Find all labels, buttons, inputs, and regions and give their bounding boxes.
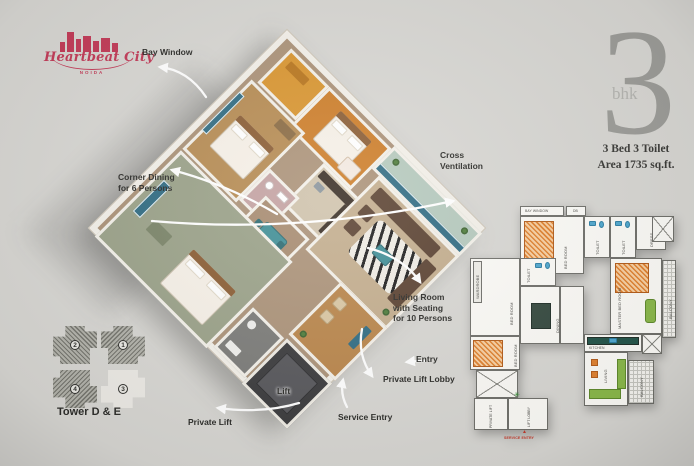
mini-dining: DINING [520, 286, 560, 344]
wc-fixture [245, 319, 258, 332]
logo-city: NOIDA [44, 70, 140, 75]
mini-bedroom-2: WARDROBE BED ROOM [470, 258, 520, 336]
tower-unit-2: 2 [53, 326, 97, 364]
label-lift: Lift [277, 386, 290, 397]
mini-service-shaft [642, 334, 662, 354]
mini-master-bedroom: MASTER BED ROOM [610, 258, 662, 334]
label-corner-dining: Corner Diningfor 6 Persons [118, 172, 175, 193]
basin-fixture [276, 191, 289, 204]
entry-arrow-icon: ▲ [522, 429, 527, 435]
plant-icon [391, 157, 401, 167]
mini-service-entry-label: SERVICE ENTRY [504, 436, 534, 440]
mini-toilet-2: TOILET [610, 216, 636, 258]
armchair [357, 204, 376, 223]
basin-fixture [225, 340, 242, 357]
arrow-service-entry [342, 380, 347, 407]
tower-unit-3: 3 [101, 370, 145, 408]
lobby-chair [332, 296, 348, 312]
plant-icon [298, 329, 308, 339]
unit-spec: 3 Bed 3 Toilet Area 1735 sq.ft. [566, 142, 694, 173]
mini-toilet-3: TOILET [520, 258, 556, 286]
floorplan-2d: BAY WINDOW DB BED ROOM TOILET TOILET DRE… [470, 200, 678, 452]
mini-passage [560, 286, 584, 344]
mini-balcony-right: BALCONY [662, 260, 676, 338]
brand-logo: Heartbeat City NOIDA [44, 24, 140, 80]
armchair [343, 218, 362, 237]
label-bay-window: Bay Window [142, 47, 192, 58]
tower-unit-4: 4 [53, 370, 97, 408]
tower-title: Tower D & E [57, 406, 121, 418]
wc-fixture [263, 179, 276, 192]
mini-bedroom-3: BED ROOM [470, 336, 520, 370]
lift-car [256, 352, 318, 414]
skyline-icon [60, 28, 124, 52]
entry-star-icon: ✳ [514, 392, 520, 399]
label-private-lift: Private Lift [188, 417, 232, 428]
brochure-page: Bay Window Corner Diningfor 6 Persons Cr… [0, 0, 694, 466]
logo-arc [50, 54, 134, 70]
label-private-lift-lobby: Private Lift Lobby [383, 374, 455, 385]
mini-bay-window: BAY WINDOW [520, 206, 564, 216]
mini-toilet-1: TOILET [584, 216, 610, 258]
bedroom3-bench [146, 220, 173, 247]
unit-type-number: 3 [588, 6, 688, 158]
plant-icon [460, 226, 470, 236]
plant-icon [381, 307, 391, 317]
mini-db: DB [566, 206, 586, 216]
lobby-console [348, 326, 372, 350]
mini-balcony-bottom: BALCONY [628, 360, 654, 404]
lobby-chair [319, 309, 335, 325]
bedroom2-bed [209, 115, 274, 180]
mini-private-lift: PRIVATE LIFT [474, 398, 508, 430]
mini-living: LIVING [584, 352, 628, 406]
tower-keyplan: 2 1 4 3 Tower D & E [45, 320, 155, 424]
study-desk [285, 61, 310, 86]
wardrobe [274, 118, 297, 141]
tower-unit-1: 1 [101, 326, 145, 364]
unit-type-suffix: bhk [612, 84, 638, 104]
mini-void-shaft [652, 216, 674, 242]
label-service-entry: Service Entry [338, 412, 392, 423]
label-living-room: Living Roomwith Seatingfor 10 Persons [393, 292, 452, 324]
mini-lift [476, 370, 518, 398]
mini-kitchen: KITCHEN [584, 334, 642, 352]
label-entry: Entry [416, 354, 438, 365]
mini-lift-lobby: LIFT LOBBY [508, 398, 548, 430]
label-cross-ventilation: CrossVentilation [440, 150, 483, 171]
